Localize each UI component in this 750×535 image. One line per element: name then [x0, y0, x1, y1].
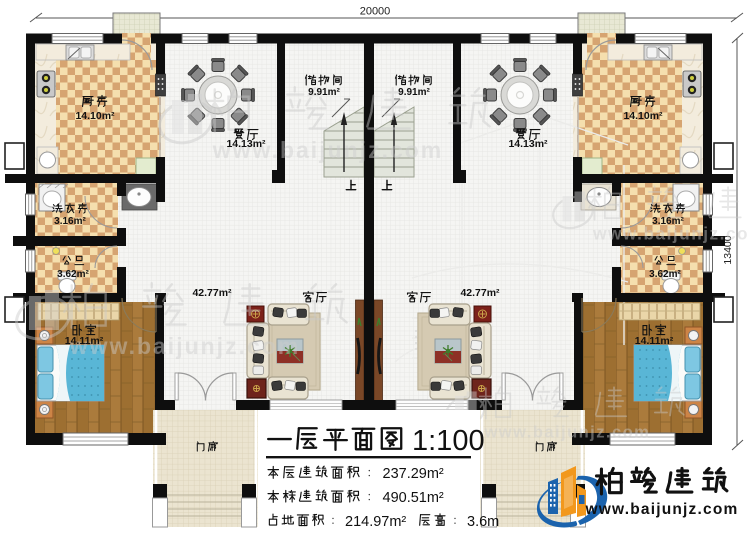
svg-text:9.91m²: 9.91m² — [308, 87, 340, 98]
svg-text:237.29m²: 237.29m² — [383, 466, 444, 482]
svg-text:9.91m²: 9.91m² — [398, 87, 430, 98]
svg-text:20000: 20000 — [360, 6, 391, 18]
svg-text:14.13m²: 14.13m² — [226, 138, 266, 150]
svg-text:490.51m²: 490.51m² — [383, 490, 444, 506]
svg-text:3.6m: 3.6m — [467, 514, 499, 530]
svg-text:www.baijunjz.com: www.baijunjz.com — [69, 333, 301, 359]
svg-text:www.baijunjz.com: www.baijunjz.com — [585, 501, 739, 518]
svg-text:214.97m²: 214.97m² — [345, 514, 406, 530]
svg-text:3.16m²: 3.16m² — [54, 216, 86, 227]
svg-text:14.10m²: 14.10m² — [623, 110, 663, 122]
svg-text:14.13m²: 14.13m² — [508, 138, 548, 150]
svg-text:www.baijunjz.com: www.baijunjz.com — [483, 423, 650, 442]
svg-text:14.11m²: 14.11m² — [65, 335, 104, 347]
svg-text:3.62m²: 3.62m² — [649, 269, 681, 280]
svg-text:3.62m²: 3.62m² — [57, 269, 89, 280]
svg-text:14.10m²: 14.10m² — [75, 110, 115, 122]
svg-text:3.16m²: 3.16m² — [652, 216, 684, 227]
svg-text:1:100: 1:100 — [412, 425, 485, 457]
svg-text:42.77m²: 42.77m² — [460, 287, 500, 299]
svg-text:14.11m²: 14.11m² — [635, 335, 674, 347]
svg-text:42.77m²: 42.77m² — [192, 287, 232, 299]
